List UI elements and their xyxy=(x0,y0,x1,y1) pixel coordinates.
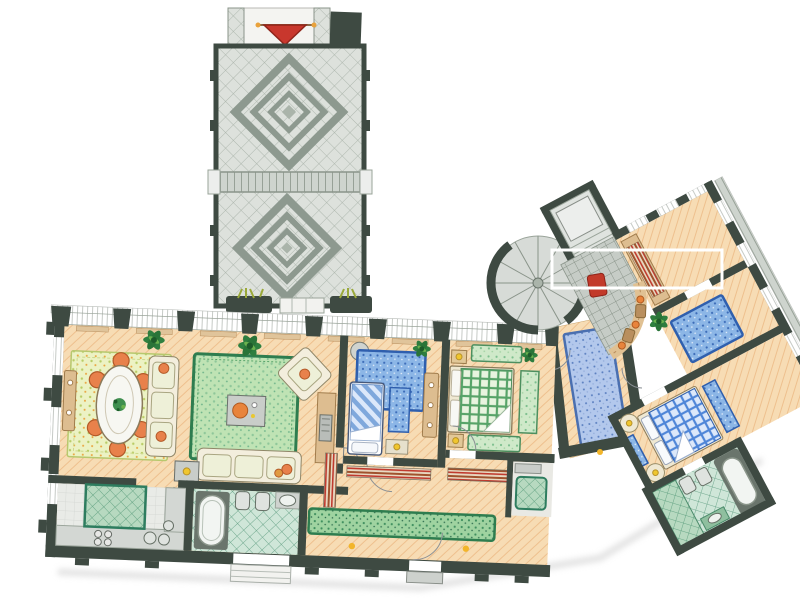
green-side-runner xyxy=(519,371,539,434)
courtyard-terrace xyxy=(208,8,372,313)
bathroom-main xyxy=(192,489,300,555)
entrance-door-gap xyxy=(409,560,441,571)
floor-plan-canvas xyxy=(0,0,800,600)
closet-shelf-b xyxy=(448,468,510,482)
sideboard xyxy=(62,370,76,430)
bedside-blue-rug xyxy=(388,388,410,433)
bidet xyxy=(255,492,270,511)
main-apartment xyxy=(36,305,559,594)
terrace-step-to-house xyxy=(280,298,324,313)
toilet xyxy=(235,491,250,510)
bathtub xyxy=(198,495,226,546)
side-table xyxy=(174,461,199,482)
tile-step-band xyxy=(220,172,360,192)
green-rug-head xyxy=(471,345,522,363)
coffee-table xyxy=(227,395,266,427)
step-edge-left xyxy=(208,170,220,194)
entrance-door-slab xyxy=(406,571,442,583)
wardrobe xyxy=(422,373,439,438)
red-chair xyxy=(587,273,608,298)
kitchen xyxy=(56,483,186,550)
single-bed xyxy=(348,382,385,455)
washbasin xyxy=(279,495,295,507)
sofa-left xyxy=(145,356,179,457)
quilted-armchair xyxy=(515,477,546,510)
stool xyxy=(635,304,645,317)
sofa-bottom xyxy=(196,448,301,484)
porch-steps xyxy=(230,564,291,583)
dressing-room xyxy=(505,457,554,519)
double-bed-green xyxy=(448,366,515,435)
kitchen-island xyxy=(84,484,146,528)
step-edge-right xyxy=(360,170,372,194)
foot-bench xyxy=(386,439,409,454)
yellow-floor-marker xyxy=(597,449,603,455)
closet-shelf-vertical xyxy=(323,453,337,507)
dressing-shelf xyxy=(515,464,541,474)
floor-plan-svg xyxy=(0,0,800,600)
